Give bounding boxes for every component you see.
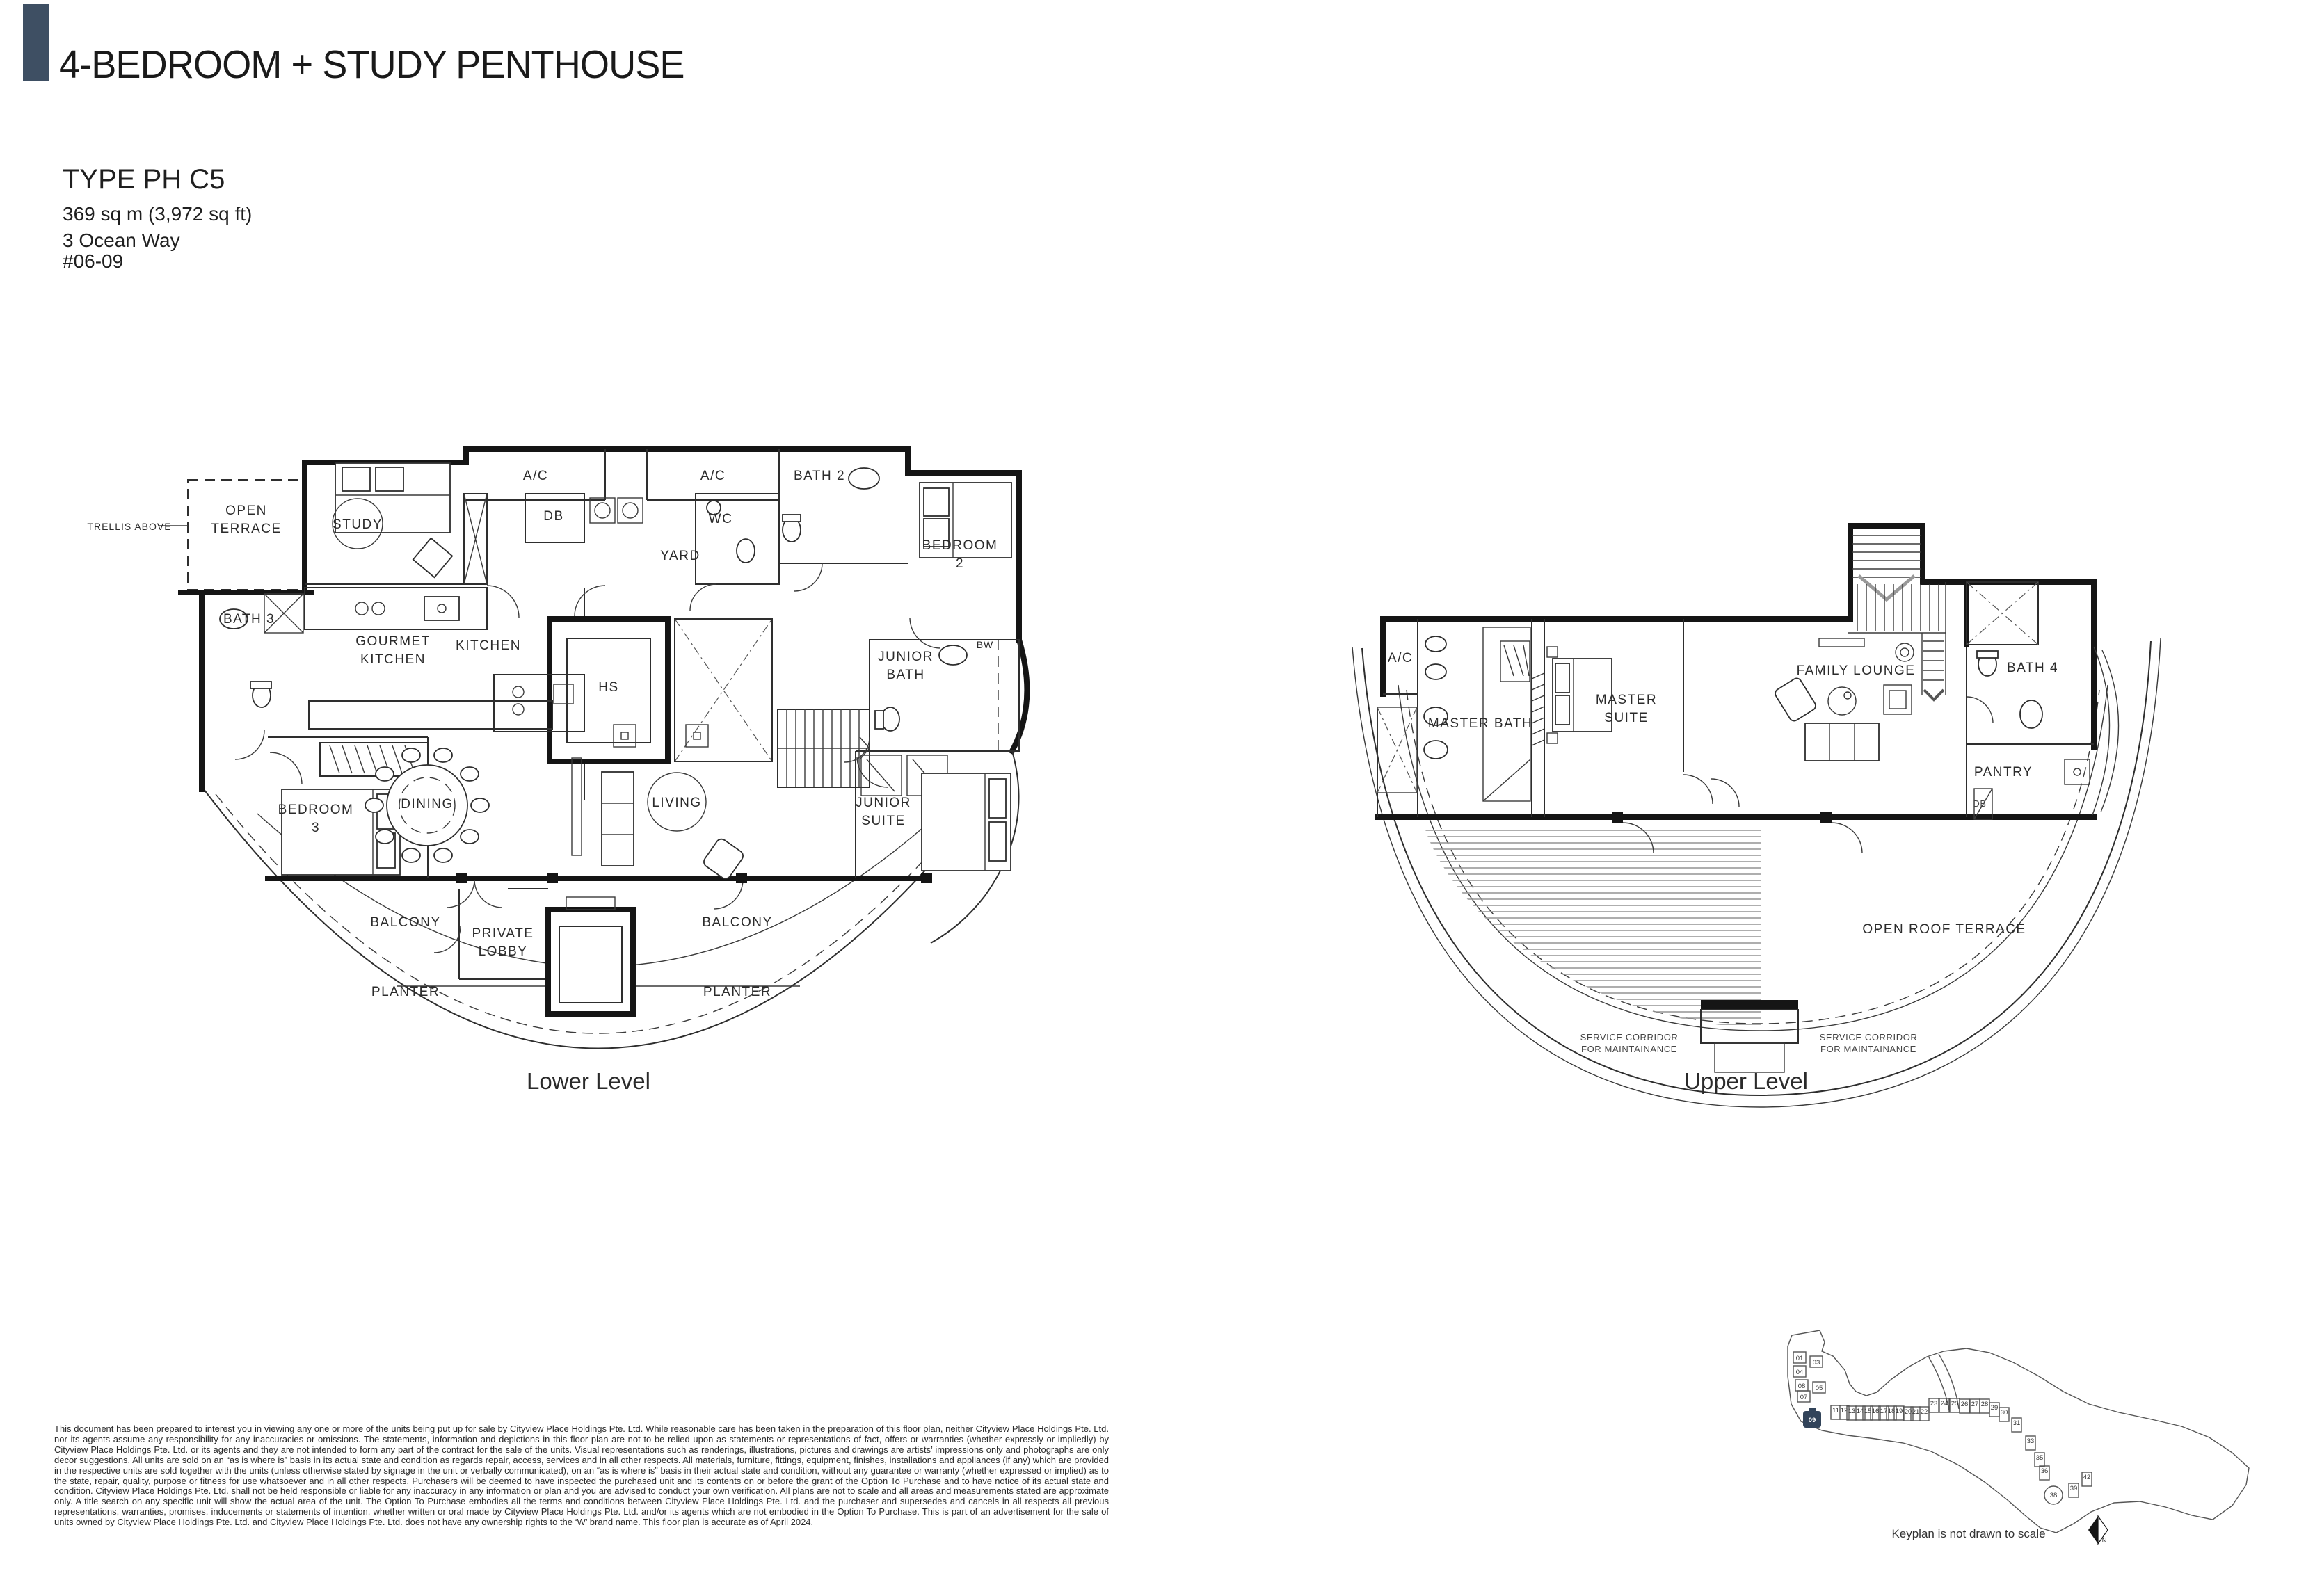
upper-level-caption: Upper Level bbox=[1600, 1068, 1892, 1095]
hs-label: HS bbox=[598, 680, 618, 695]
svg-text:29: 29 bbox=[1991, 1404, 1999, 1412]
keyplan-block-08: 08 bbox=[1795, 1380, 1808, 1391]
upper-level-plan: A/CMASTER BATHMASTERSUITEFAMILY LOUNGEBA… bbox=[1308, 515, 2212, 1113]
bw-label: BW bbox=[977, 639, 994, 650]
keyplan-block-25: 25 bbox=[1950, 1398, 1960, 1412]
keyplan-block-03: 03 bbox=[1810, 1356, 1823, 1367]
lower-room-labels: OPENTERRACESTUDYA/CA/CBATH 2DBWCYARDBEDR… bbox=[87, 469, 998, 999]
keyplan-block-28: 28 bbox=[1980, 1399, 1989, 1413]
svg-text:38: 38 bbox=[2050, 1492, 2058, 1499]
svg-text:36: 36 bbox=[2041, 1467, 2049, 1475]
svg-text:42: 42 bbox=[2083, 1474, 2091, 1481]
keyplan-block-23: 23 bbox=[1929, 1398, 1939, 1412]
ac-1-label: A/C bbox=[523, 469, 548, 483]
keyplan-block-39: 39 bbox=[2069, 1483, 2079, 1497]
junior-suite-label: JUNIORSUITE bbox=[856, 796, 911, 828]
keyplan-caption: Keyplan is not drawn to scale bbox=[1823, 1527, 2115, 1541]
void-and-stairs bbox=[675, 619, 870, 787]
svg-text:23: 23 bbox=[1930, 1400, 1938, 1408]
planter-left-label: PLANTER bbox=[371, 985, 440, 999]
svg-text:27: 27 bbox=[1971, 1401, 1979, 1408]
svg-text:39: 39 bbox=[2070, 1485, 2078, 1492]
upper-lift-void bbox=[1967, 582, 2038, 645]
svg-text:33: 33 bbox=[2027, 1437, 2035, 1445]
study-label: STUDY bbox=[333, 517, 383, 532]
keyplan-block-05: 05 bbox=[1813, 1382, 1825, 1393]
db-label: DB bbox=[543, 509, 563, 524]
svg-text:30: 30 bbox=[2001, 1409, 2008, 1417]
keyplan-block-19: 19 bbox=[1894, 1406, 1904, 1420]
svg-text:19: 19 bbox=[1896, 1408, 1903, 1415]
keyplan-block-38: 38 bbox=[2044, 1486, 2063, 1504]
svg-text:05: 05 bbox=[1816, 1385, 1823, 1392]
svg-text:07: 07 bbox=[1800, 1394, 1808, 1401]
disclaimer-text: This document has been prepared to inter… bbox=[54, 1424, 1109, 1528]
junior-bath-label: JUNIORBATH bbox=[878, 650, 934, 682]
keyplan-block-27: 27 bbox=[1970, 1399, 1980, 1413]
open-roof-terrace-label: OPEN ROOF TERRACE bbox=[1862, 922, 2026, 937]
lower-level-plan: OPENTERRACESTUDYA/CA/CBATH 2DBWCYARDBEDR… bbox=[77, 410, 1036, 1099]
keyplan-block-35: 35 bbox=[2035, 1453, 2044, 1467]
keyplan-block-42: 42 bbox=[2082, 1472, 2092, 1486]
keyplan-block-04: 04 bbox=[1793, 1366, 1806, 1377]
svg-text:13: 13 bbox=[1848, 1408, 1856, 1415]
svg-text:03: 03 bbox=[1813, 1359, 1820, 1367]
svg-text:25: 25 bbox=[1951, 1400, 1959, 1408]
kitchen-fixtures bbox=[305, 588, 584, 732]
svg-text:11: 11 bbox=[1832, 1407, 1839, 1414]
service-corridor-right-label: SERVICE CORRIDORFOR MAINTAINANCE bbox=[1820, 1032, 1918, 1054]
private-lobby-label: PRIVATELOBBY bbox=[472, 926, 534, 959]
keyplan-block-01: 01 bbox=[1793, 1352, 1806, 1363]
bath-4-label: BATH 4 bbox=[2007, 661, 2058, 675]
bath-2-label: BATH 2 bbox=[794, 469, 845, 483]
svg-text:01: 01 bbox=[1796, 1355, 1804, 1362]
svg-text:22: 22 bbox=[1921, 1408, 1928, 1416]
bath-3-label: BATH 3 bbox=[223, 612, 275, 627]
svg-text:21: 21 bbox=[1912, 1408, 1920, 1416]
svg-text:08: 08 bbox=[1798, 1383, 1806, 1390]
master-bath-label: MASTER BATH bbox=[1428, 716, 1532, 731]
yard-appliances bbox=[590, 498, 643, 523]
ac-2-label: A/C bbox=[700, 469, 726, 483]
family-lounge-label: FAMILY LOUNGE bbox=[1797, 663, 1916, 678]
svg-text:16: 16 bbox=[1872, 1408, 1880, 1415]
planter-right-label: PLANTER bbox=[703, 985, 771, 999]
keyplan-block-26: 26 bbox=[1960, 1399, 1969, 1413]
svg-text:31: 31 bbox=[2013, 1419, 2021, 1427]
kitchen-label: KITCHEN bbox=[456, 638, 521, 653]
svg-text:35: 35 bbox=[2036, 1454, 2044, 1462]
balcony-left-label: BALCONY bbox=[370, 915, 440, 930]
trellis-above-label: TRELLIS ABOVE bbox=[87, 521, 171, 532]
family-lounge-furniture bbox=[1773, 638, 1914, 761]
gourmet-kitchen-label: GOURMETKITCHEN bbox=[355, 634, 431, 667]
balcony-right-label: BALCONY bbox=[702, 915, 772, 930]
svg-text:28: 28 bbox=[1981, 1401, 1989, 1408]
page-title: 4-BEDROOM + STUDY PENTHOUSE bbox=[59, 42, 684, 88]
floorplan-sheet: { "header": { "title": "4-BEDROOM + STUD… bbox=[0, 0, 2306, 1596]
keyplan-block-09: 09 bbox=[1803, 1408, 1821, 1428]
living-label: LIVING bbox=[652, 796, 701, 810]
yard-label: YARD bbox=[660, 549, 700, 563]
svg-text:09: 09 bbox=[1809, 1417, 1816, 1424]
keyplan-block-31: 31 bbox=[2012, 1418, 2021, 1432]
unit-address: 3 Ocean Way bbox=[63, 229, 180, 252]
unit-type: TYPE PH C5 bbox=[63, 164, 225, 195]
pantry-label: PANTRY bbox=[1974, 765, 2033, 780]
unit-number: #06-09 bbox=[63, 250, 123, 273]
keyplan-block-36: 36 bbox=[2040, 1466, 2049, 1480]
dining-label: DINING bbox=[401, 797, 454, 812]
accent-bar bbox=[23, 4, 49, 81]
lift-lobby bbox=[548, 897, 633, 1014]
keyplan-block-24: 24 bbox=[1939, 1398, 1949, 1412]
ac-upper-label: A/C bbox=[1388, 651, 1413, 666]
svg-text:04: 04 bbox=[1796, 1369, 1804, 1376]
svg-text:26: 26 bbox=[1961, 1401, 1969, 1408]
db-upper-label: DB bbox=[1973, 798, 1986, 809]
lower-level-caption: Lower Level bbox=[442, 1068, 735, 1095]
keyplan-blocks: 0103040807050911121314151617181920212223… bbox=[1793, 1352, 2092, 1504]
keyplan-block-33: 33 bbox=[2026, 1436, 2035, 1450]
keyplan-block-30: 30 bbox=[1999, 1408, 2009, 1421]
keyplan-block-07: 07 bbox=[1797, 1391, 1810, 1402]
svg-text:24: 24 bbox=[1941, 1400, 1948, 1408]
unit-area: 369 sq m (3,972 sq ft) bbox=[63, 203, 252, 225]
open-terrace-label: OPENTERRACE bbox=[211, 503, 281, 536]
service-corridor-left-label: SERVICE CORRIDORFOR MAINTAINANCE bbox=[1580, 1032, 1679, 1054]
wc-label: WC bbox=[709, 512, 733, 526]
keyplan-block-29: 29 bbox=[1989, 1403, 1999, 1417]
